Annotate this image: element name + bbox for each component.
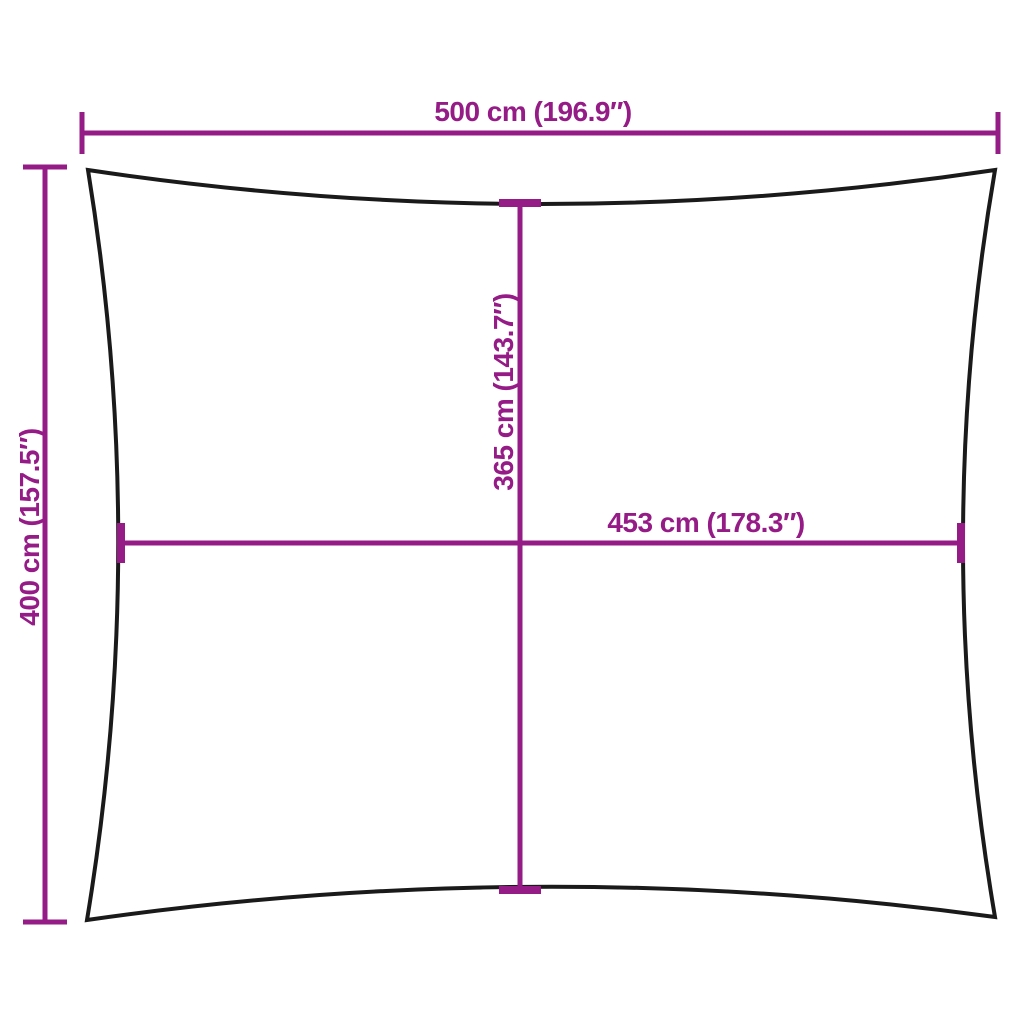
- dimension-lines: [23, 112, 998, 922]
- center-horizontal-right-cap: [957, 523, 965, 563]
- center-vertical-bottom-cap: [499, 886, 541, 894]
- center-width-label: 453 cm (178.3″): [607, 507, 804, 538]
- center-vertical-top-cap: [499, 199, 541, 207]
- left-height-label: 400 cm (157.5″): [14, 428, 45, 625]
- diagram-svg: 500 cm (196.9″) 400 cm (157.5″) 365 cm (…: [0, 0, 1024, 1024]
- top-width-label: 500 cm (196.9″): [434, 96, 631, 127]
- center-height-label: 365 cm (143.7″): [488, 293, 519, 490]
- dimension-diagram: 500 cm (196.9″) 400 cm (157.5″) 365 cm (…: [0, 0, 1024, 1024]
- dimension-caps-and-labels: 500 cm (196.9″) 400 cm (157.5″) 365 cm (…: [14, 96, 965, 894]
- center-horizontal-left-cap: [117, 523, 125, 563]
